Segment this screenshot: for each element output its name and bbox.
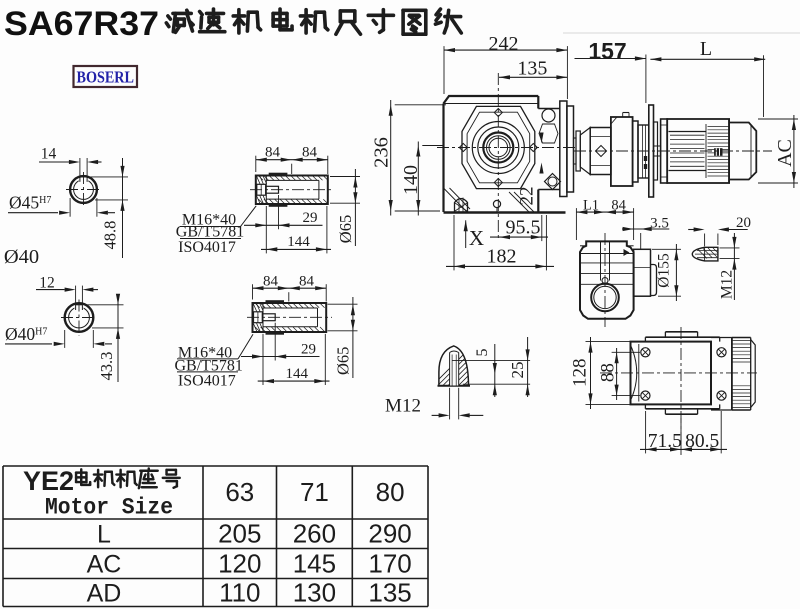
- svg-text:84: 84: [263, 274, 279, 290]
- svg-text:L: L: [700, 38, 712, 60]
- svg-text:290: 290: [368, 519, 411, 549]
- svg-text:Ø45H7: Ø45H7: [9, 193, 51, 213]
- svg-text:Ø155: Ø155: [656, 253, 673, 288]
- svg-text:20: 20: [736, 215, 751, 231]
- svg-text:Ø40H7: Ø40H7: [5, 324, 47, 344]
- svg-text:SA67R37: SA67R37: [4, 5, 159, 43]
- svg-text:12: 12: [39, 275, 55, 292]
- svg-text:L: L: [97, 521, 111, 549]
- svg-text:AC: AC: [774, 139, 796, 167]
- svg-text:144: 144: [287, 234, 310, 250]
- svg-text:128: 128: [570, 358, 591, 387]
- svg-text:Ø65: Ø65: [334, 347, 353, 375]
- svg-text:130: 130: [293, 578, 336, 608]
- svg-text:144: 144: [286, 366, 309, 382]
- svg-text:AC: AC: [87, 551, 122, 579]
- svg-text:29: 29: [303, 210, 318, 226]
- svg-text:157: 157: [588, 38, 626, 64]
- svg-text:120: 120: [218, 549, 261, 579]
- svg-text:84: 84: [302, 145, 318, 161]
- svg-text:M12: M12: [719, 270, 736, 299]
- svg-text:63: 63: [225, 477, 254, 507]
- svg-text:170: 170: [368, 549, 411, 579]
- svg-text:88: 88: [598, 363, 619, 382]
- svg-text:110: 110: [219, 578, 260, 608]
- svg-text:242: 242: [489, 33, 519, 55]
- svg-text:YE2: YE2: [23, 466, 74, 496]
- svg-text:182: 182: [487, 246, 517, 268]
- svg-text:135: 135: [368, 578, 411, 608]
- svg-text:135: 135: [517, 58, 547, 80]
- svg-text:43.3: 43.3: [97, 352, 116, 381]
- svg-text:260: 260: [293, 519, 336, 549]
- svg-text:140: 140: [400, 165, 422, 195]
- svg-text:84: 84: [299, 274, 315, 290]
- svg-text:AD: AD: [87, 580, 122, 608]
- svg-text:71: 71: [300, 477, 329, 507]
- svg-text:84: 84: [265, 145, 281, 161]
- svg-text:95.5: 95.5: [506, 217, 541, 239]
- svg-text:48.8: 48.8: [101, 221, 120, 250]
- svg-text:29: 29: [301, 342, 316, 358]
- svg-text:14: 14: [41, 146, 57, 163]
- svg-text:Ø65: Ø65: [336, 215, 355, 243]
- svg-text:Ø40: Ø40: [4, 246, 39, 268]
- svg-text:Motor Size: Motor Size: [45, 495, 173, 521]
- svg-text:ISO4017: ISO4017: [178, 373, 236, 390]
- svg-text:5: 5: [474, 349, 491, 357]
- svg-text:145: 145: [293, 549, 336, 579]
- svg-text:80: 80: [376, 477, 405, 507]
- svg-text:236: 236: [371, 137, 393, 168]
- svg-text:25: 25: [508, 362, 527, 379]
- svg-text:ISO4017: ISO4017: [178, 239, 236, 256]
- svg-text:M12: M12: [385, 396, 421, 417]
- svg-text:205: 205: [218, 519, 261, 549]
- svg-text:BOSERL: BOSERL: [77, 68, 135, 87]
- svg-text:X: X: [469, 226, 484, 250]
- svg-text:GB/T5781: GB/T5781: [176, 224, 244, 241]
- svg-text:22: 22: [517, 187, 538, 206]
